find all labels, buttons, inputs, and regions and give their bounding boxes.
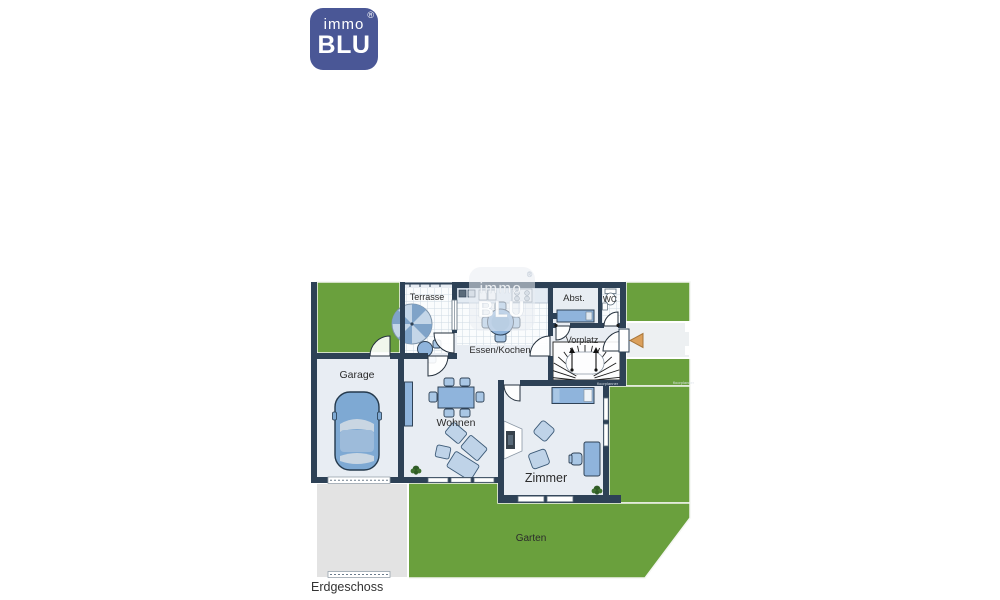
sideboard-icon: [405, 382, 413, 426]
label-wc: WC: [603, 294, 617, 304]
window: [547, 496, 573, 502]
label-essen-kochen: Essen/Kochen: [469, 345, 530, 356]
label-zimmer: Zimmer: [525, 471, 567, 485]
window: [518, 496, 544, 502]
driveway-gate: [328, 572, 390, 578]
fine-print: floorplanner: [673, 380, 695, 385]
driveway: [316, 483, 408, 578]
path-edge-mark: [685, 346, 689, 355]
label-terrasse: Terrasse: [410, 292, 445, 302]
watermark-immo-text: immo: [480, 280, 523, 297]
window: [604, 424, 608, 446]
garage-door: [328, 477, 390, 484]
car-icon: [333, 392, 382, 470]
watermark-blu-text: BLU: [477, 296, 524, 322]
window: [474, 478, 494, 483]
label-vorplatz: Vorplatz: [566, 335, 599, 345]
garden-right-top: [626, 282, 690, 322]
wc-sink-icon: [603, 303, 608, 310]
label-wohnen: Wohnen: [437, 417, 476, 429]
storage-shelf-icon: [553, 310, 594, 322]
watermark-logo: immo BLU ®: [469, 267, 535, 331]
floorplan-page: immo BLU ®: [0, 0, 1000, 600]
label-abst: Abst.: [563, 293, 585, 304]
parasol-icon: [392, 304, 432, 344]
window: [428, 478, 448, 483]
window: [451, 478, 471, 483]
floor-title: Erdgeschoss: [311, 580, 383, 594]
fine-print: floorplanner: [597, 381, 619, 386]
registered-trademark-icon: ®: [367, 11, 374, 20]
floorplan-drawing: Terrasse Essen/Kochen Abst. WC Vorplatz …: [300, 265, 700, 600]
watermark-registered-icon: ®: [527, 271, 533, 279]
garden-right-of-zimmer: [609, 386, 690, 503]
bed-icon: [552, 388, 594, 404]
appliance-icon: [459, 290, 466, 297]
logo-blu-text: BLU: [310, 32, 378, 58]
path-edge-mark: [685, 323, 689, 332]
label-garage: Garage: [339, 369, 374, 381]
label-garten: Garten: [516, 533, 547, 544]
immoblu-logo: immo BLU ®: [310, 8, 378, 70]
window: [604, 398, 608, 420]
